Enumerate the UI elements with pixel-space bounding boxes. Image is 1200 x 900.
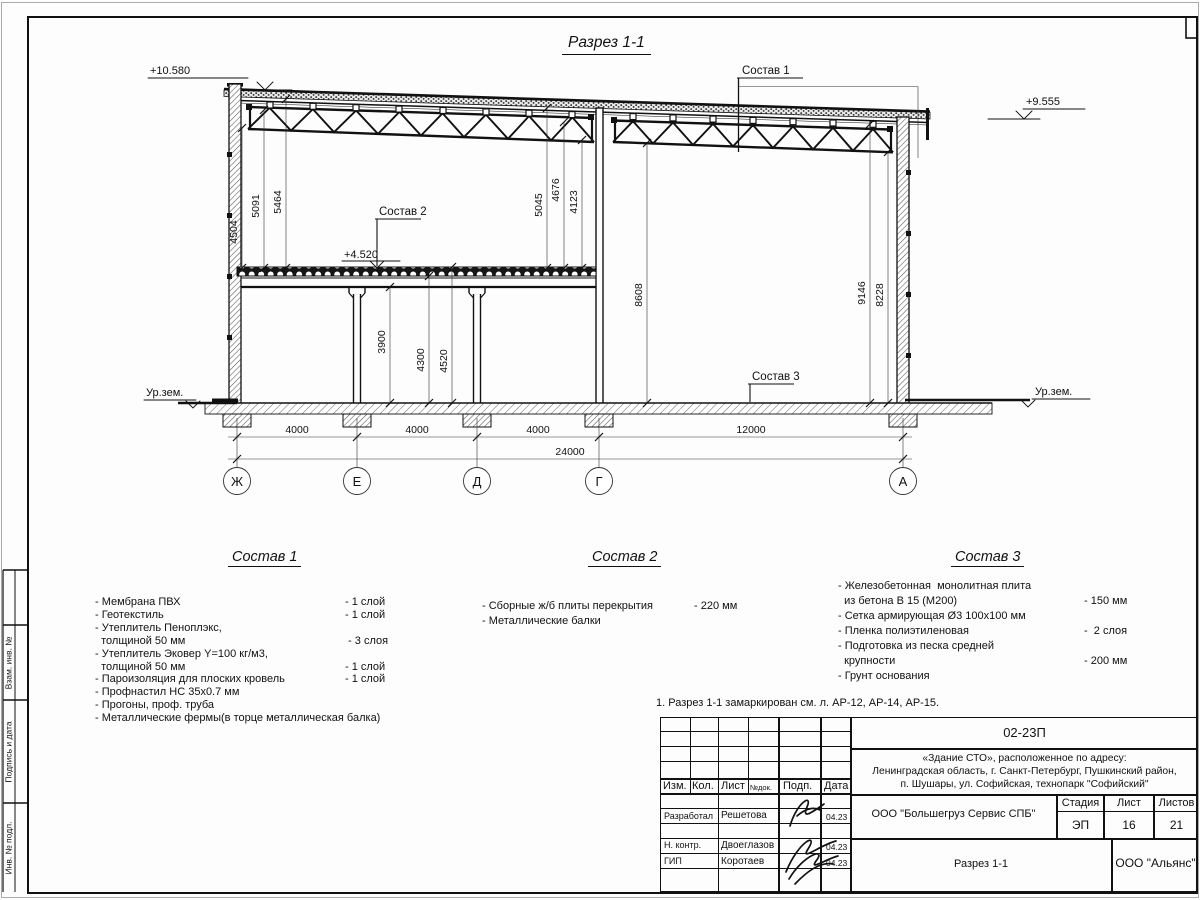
dim-label: 4676 bbox=[550, 178, 562, 202]
sostav3-title: Состав 3 bbox=[951, 549, 1024, 567]
dimensions: 4504 5091 5464 5045 4676 4123 8608 9146 … bbox=[228, 95, 912, 467]
stage-value: ЭП bbox=[1058, 818, 1103, 832]
roof-membrane bbox=[224, 89, 930, 112]
wall-left bbox=[229, 84, 241, 405]
list-item: - Сетка армирующая Ø3 100х100 мм bbox=[838, 609, 1084, 624]
row-role: ГИП bbox=[664, 856, 682, 866]
sheets-value: 21 bbox=[1155, 818, 1198, 832]
wall-panel-joints bbox=[227, 152, 911, 358]
row-date: 04.23 bbox=[826, 858, 847, 868]
parapet-cap bbox=[227, 83, 243, 87]
side-stamp-field: Подпись и дата bbox=[2, 700, 15, 803]
list-item: - Прогоны, проф. труба bbox=[95, 699, 345, 712]
dim-label: 9146 bbox=[856, 281, 868, 305]
leader-label: Состав 1 bbox=[742, 65, 790, 77]
dim-label: 5091 bbox=[250, 194, 262, 218]
side-stamp-field: Инв. № подл. bbox=[2, 803, 15, 892]
dim-label: 4504 bbox=[228, 220, 240, 244]
ground-slab bbox=[205, 403, 992, 414]
list-item: - Утеплитель Эковер Y=100 кг/м3, bbox=[95, 648, 345, 661]
row-name: Двоеглазов bbox=[721, 840, 774, 851]
stage-label: Стадия bbox=[1058, 797, 1103, 809]
elevation-label: Ур.зем. bbox=[146, 387, 183, 399]
dim-label: 4123 bbox=[568, 190, 580, 214]
company-name: ООО "Альянс" bbox=[1113, 856, 1198, 870]
col-data: Дата bbox=[824, 780, 848, 792]
col-ndok: №док. bbox=[750, 783, 772, 792]
row-name: Коротаев bbox=[721, 856, 764, 867]
dim-lines bbox=[228, 99, 912, 467]
list-item: - Сборные ж/б плиты перекрытия bbox=[482, 599, 694, 614]
column-e bbox=[349, 288, 365, 406]
list-item: - Пленка полиэтиленовая bbox=[838, 624, 1084, 639]
hollowcore-slab bbox=[237, 267, 596, 276]
dim-label: 3900 bbox=[376, 330, 388, 354]
dim-labels: 4504 5091 5464 5045 4676 4123 8608 9146 … bbox=[228, 178, 886, 458]
sostav1-title: Состав 1 bbox=[228, 549, 301, 567]
axis-label: Ж bbox=[231, 474, 243, 489]
dim-label: 5045 bbox=[533, 193, 545, 217]
axis-label: А bbox=[899, 474, 908, 489]
sheet-label: Лист bbox=[1105, 797, 1153, 809]
truss-gussets bbox=[246, 104, 893, 132]
row-role: Разработал bbox=[664, 811, 713, 821]
leader-label: Состав 2 bbox=[379, 206, 427, 218]
row-role: Н. контр. bbox=[664, 840, 701, 850]
dim-label: 5464 bbox=[272, 190, 284, 214]
list-item: - Металлические фермы(в торце металличес… bbox=[95, 712, 345, 725]
drawing-name: Разрез 1-1 bbox=[851, 858, 1111, 870]
axis-label: Д bbox=[473, 474, 482, 489]
leader-label: Состав 3 bbox=[752, 371, 800, 383]
dim-label: 8228 bbox=[874, 283, 886, 307]
plinth-left bbox=[212, 399, 238, 404]
dim-label: 4000 bbox=[285, 424, 309, 436]
list-item: - Подготовка из песка средней bbox=[838, 639, 1084, 654]
col-kol: Кол. bbox=[692, 780, 714, 792]
list-item: - Мембрана ПВХ bbox=[95, 596, 345, 609]
sheet-value: 16 bbox=[1105, 818, 1153, 832]
project-code: 02-23П bbox=[851, 725, 1198, 740]
list-item: - Железобетонная монолитная плита bbox=[838, 579, 1084, 594]
sostav2-title: Состав 2 bbox=[588, 549, 661, 567]
dim-label: 24000 bbox=[555, 446, 584, 458]
sostav3-list: - Железобетонная монолитная плита из бет… bbox=[838, 579, 1127, 684]
wall-right bbox=[897, 117, 909, 405]
footings bbox=[223, 414, 917, 427]
row-date: 04.23 bbox=[826, 842, 847, 852]
sostav1-list: - Мембрана ПВХ- 1 слой - Геотекстиль- 1 … bbox=[95, 596, 388, 725]
drawing-sheet: Разрез 1-1 Состав 1 Состав 2 Состав 3 - … bbox=[0, 0, 1200, 900]
truss-left bbox=[248, 107, 594, 142]
roof-insulation bbox=[224, 90, 930, 119]
list-item: - Геотекстиль bbox=[95, 609, 345, 622]
drawing-note: 1. Разрез 1-1 замаркирован см. л. АР-12,… bbox=[656, 697, 939, 709]
list-item: - Утеплитель Пеноплэкс, bbox=[95, 622, 345, 635]
purlins bbox=[267, 102, 876, 127]
roof-deck bbox=[238, 101, 928, 123]
list-item: крупности bbox=[838, 654, 1084, 669]
dim-label: 4000 bbox=[405, 424, 429, 436]
corner-box bbox=[1186, 17, 1197, 38]
list-item: толщиной 50 мм bbox=[95, 635, 345, 648]
col-izm: Изм. bbox=[663, 780, 687, 792]
list-item: - Профнастил НС 35х0.7 мм bbox=[95, 686, 345, 699]
axis-bubbles: Ж Е Д Г А bbox=[224, 468, 917, 495]
dim-label: 4520 bbox=[438, 349, 450, 373]
list-item: толщиной 50 мм bbox=[95, 661, 345, 674]
dim-label: 4000 bbox=[526, 424, 550, 436]
truss-right bbox=[613, 121, 893, 153]
dim-label: 8608 bbox=[633, 283, 645, 307]
elevation-label: Ур.зем. bbox=[1035, 386, 1072, 398]
sostav2-list: - Сборные ж/б плиты перекрытия- 220 мм -… bbox=[482, 599, 737, 628]
elevation-label: +10.580 bbox=[150, 65, 190, 77]
elevation-label: +4.520 bbox=[344, 249, 378, 261]
object-address: «Здание СТО», расположенное по адресу: Л… bbox=[851, 752, 1198, 791]
col-list: Лист bbox=[721, 780, 745, 792]
list-item: - Грунт основания bbox=[838, 669, 1084, 684]
row-date: 04.23 bbox=[826, 812, 847, 822]
row-name: Решетова bbox=[721, 810, 767, 821]
page-title: Разрез 1-1 bbox=[562, 34, 651, 55]
list-item: из бетона В 15 (М200) bbox=[838, 594, 1084, 609]
sheets-label: Листов bbox=[1155, 797, 1198, 809]
elevation-label: +9.555 bbox=[1026, 96, 1060, 108]
dim-label: 12000 bbox=[736, 424, 765, 436]
leader-labels: Состав 1 Состав 2 Состав 3 bbox=[375, 65, 918, 402]
axis-label: Е bbox=[353, 474, 362, 489]
org-name: ООО "Большегруз Сервис СПБ" bbox=[851, 808, 1056, 820]
column-d bbox=[469, 288, 485, 406]
list-item: - Пароизоляция для плоских кровель bbox=[95, 673, 345, 686]
list-item: - Металлические балки bbox=[482, 614, 694, 629]
col-podp: Подп. bbox=[783, 780, 812, 792]
wall-middle bbox=[596, 108, 603, 405]
axis-label: Г bbox=[595, 474, 602, 489]
dim-label: 4300 bbox=[415, 348, 427, 372]
elevation-marks: +10.580 +9.555 +4.520 Ур.зем. Ур.зем. bbox=[144, 65, 1090, 408]
building-section bbox=[178, 83, 1030, 427]
title-block: Изм. Кол. Лист №док. Подп. Дата Разработ… bbox=[660, 717, 1197, 892]
dim-ticks bbox=[233, 95, 907, 463]
side-stamp-field: Взам. инв. № bbox=[2, 625, 15, 700]
